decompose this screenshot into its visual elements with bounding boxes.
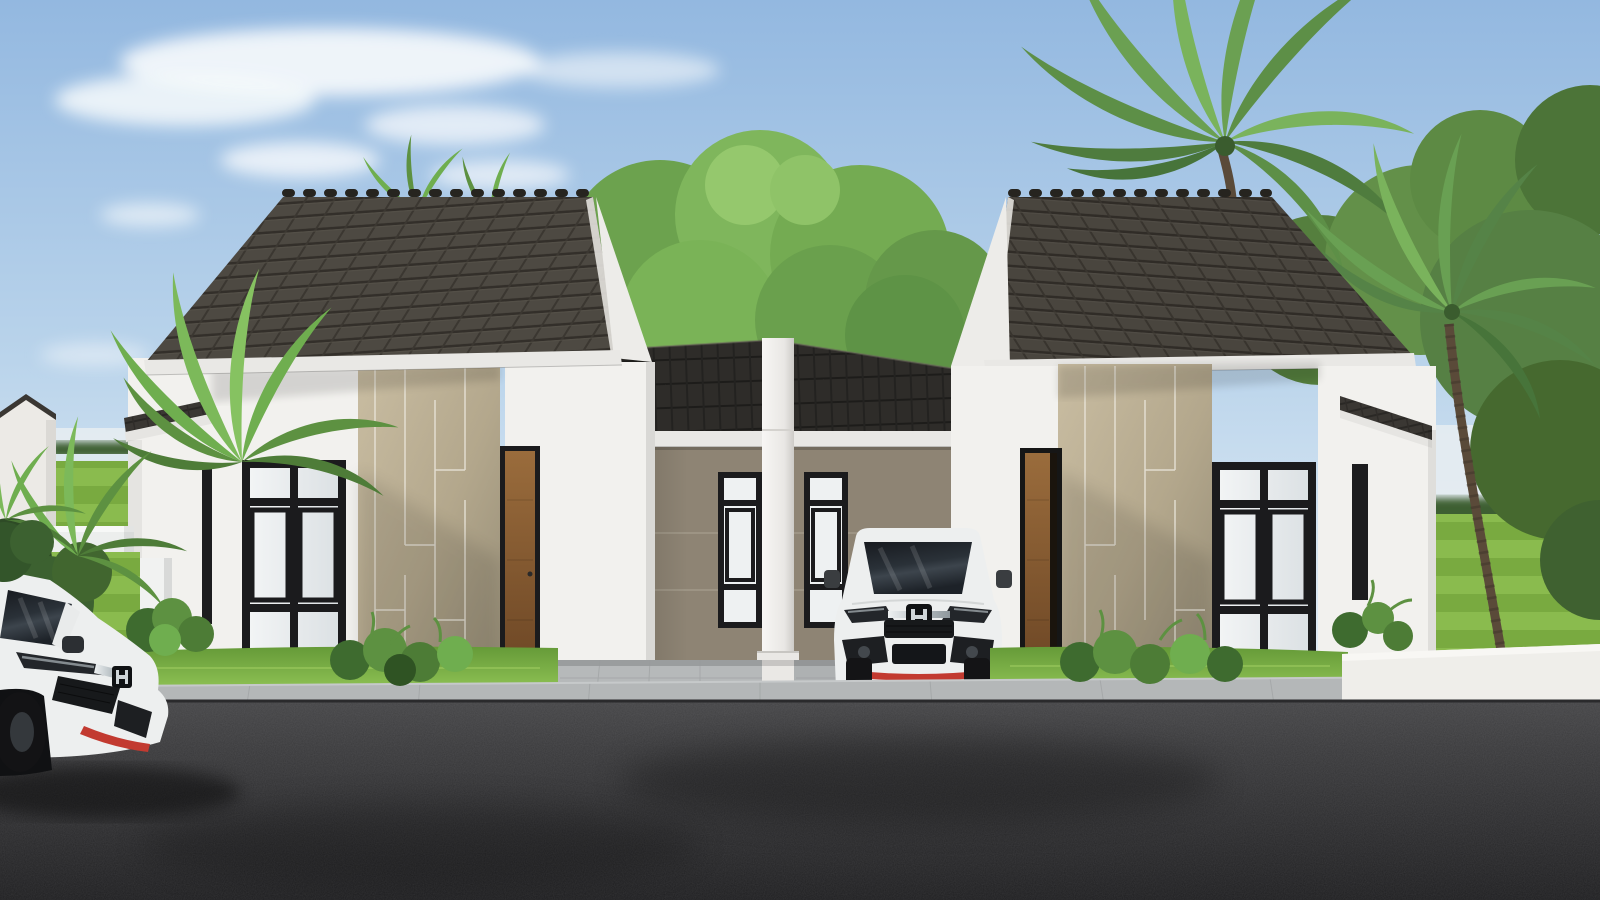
right-house-window <box>1212 462 1316 668</box>
asphalt-road <box>0 700 1600 900</box>
car-mirror-left <box>824 570 840 588</box>
car-grille <box>884 620 954 638</box>
left-car-honda-logo <box>112 666 132 688</box>
architectural-render-scene <box>0 0 1600 900</box>
left-house-window <box>242 460 346 666</box>
carport-window-left <box>718 472 762 628</box>
road-shadow-center <box>620 738 1220 822</box>
car-mirror-right <box>996 570 1012 588</box>
carport-divider-pillar <box>757 338 799 702</box>
right-wing-window <box>1352 464 1368 600</box>
left-car-mirror <box>62 636 84 653</box>
